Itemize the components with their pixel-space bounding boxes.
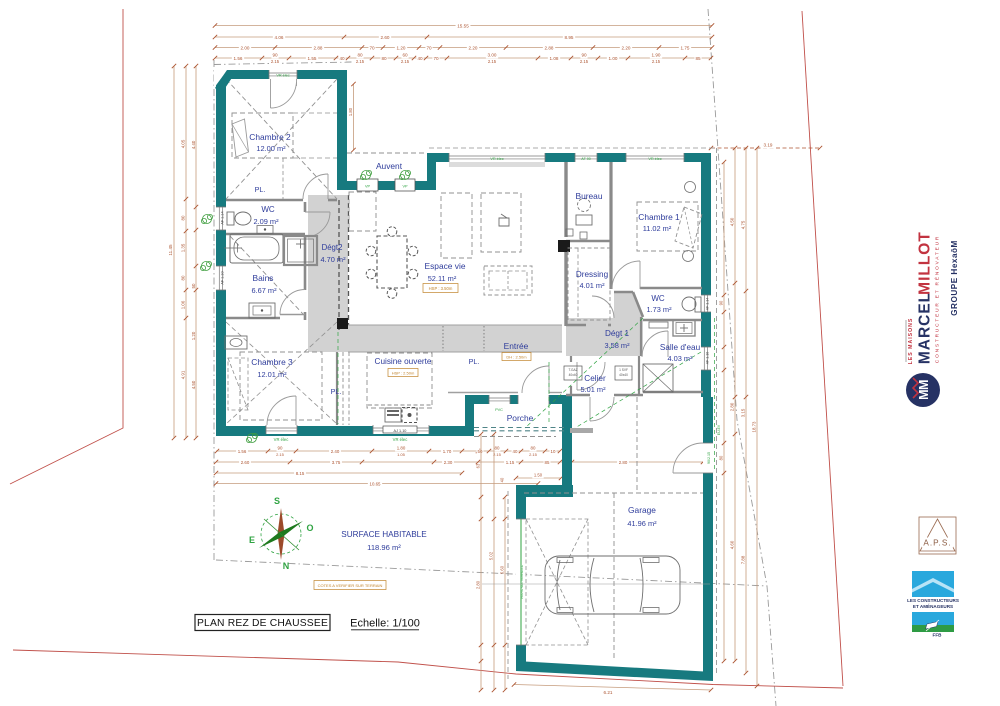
svg-text:4.01 m²: 4.01 m² (579, 281, 605, 290)
svg-text:70: 70 (426, 46, 432, 51)
svg-text:40x40: 40x40 (619, 373, 628, 377)
svg-text:LES CONSTRUCTEURS: LES CONSTRUCTEURS (907, 598, 959, 603)
svg-text:S: S (274, 496, 280, 506)
svg-text:40: 40 (339, 56, 345, 61)
svg-text:LES MAISONS: LES MAISONS (908, 318, 914, 365)
svg-text:1.05: 1.05 (397, 452, 406, 457)
svg-text:WC: WC (261, 205, 275, 214)
svg-text:AF 1.10: AF 1.10 (706, 352, 710, 365)
svg-text:52.11 m²: 52.11 m² (428, 274, 457, 283)
svg-text:1 SVF: 1 SVF (619, 368, 628, 372)
svg-text:COTES A VERIFIER SUR TERRAIN: COTES A VERIFIER SUR TERRAIN (318, 583, 383, 588)
svg-text:80: 80 (381, 56, 387, 61)
svg-text:63: 63 (476, 463, 481, 468)
svg-text:T.GAZ: T.GAZ (568, 368, 577, 372)
svg-text:3.19: 3.19 (764, 143, 773, 148)
svg-text:1.70: 1.70 (443, 449, 452, 454)
svg-text:Dégt 1: Dégt 1 (605, 329, 630, 338)
svg-text:2.80: 2.80 (730, 402, 735, 411)
svg-text:4.91: 4.91 (181, 370, 186, 379)
svg-text:50: 50 (191, 283, 196, 288)
svg-text:O: O (306, 523, 313, 533)
svg-text:WC: WC (651, 294, 665, 303)
svg-text:VR élec: VR élec (648, 157, 661, 161)
svg-text:2.60: 2.60 (241, 460, 250, 465)
svg-text:90: 90 (581, 53, 587, 58)
svg-text:4.75: 4.75 (741, 220, 746, 229)
svg-text:AF 90: AF 90 (581, 157, 591, 161)
svg-text:90: 90 (719, 300, 724, 305)
svg-text:80: 80 (357, 53, 363, 58)
svg-text:1.15: 1.15 (506, 460, 515, 465)
svg-text:18.73: 18.73 (752, 421, 757, 433)
svg-text:CONSTRUCTEUR ET RÉNOVATEUR: CONSTRUCTEUR ET RÉNOVATEUR (934, 235, 941, 363)
svg-text:1.20: 1.20 (191, 331, 196, 340)
svg-text:VR élec: VR élec (276, 74, 289, 78)
svg-text:1.80: 1.80 (397, 446, 406, 451)
svg-text:AF 1.10: AF 1.10 (221, 271, 225, 284)
svg-text:12.00 m²: 12.00 m² (256, 144, 286, 153)
svg-text:AF 1.14: AF 1.14 (221, 211, 225, 224)
svg-text:VR élec: VR élec (393, 437, 408, 442)
svg-text:VR élec: VR élec (490, 157, 503, 161)
svg-text:5.02: 5.02 (489, 551, 494, 560)
svg-text:118.96 m²: 118.96 m² (367, 543, 401, 552)
svg-text:1.20: 1.20 (397, 46, 406, 51)
svg-text:2.15: 2.15 (529, 452, 538, 457)
svg-text:A.P.S.: A.P.S. (923, 539, 951, 548)
svg-text:1.75: 1.75 (681, 46, 690, 51)
svg-text:90: 90 (278, 446, 283, 451)
svg-text:2.15: 2.15 (271, 59, 280, 64)
svg-text:80: 80 (181, 215, 186, 220)
svg-text:Chambre 1: Chambre 1 (638, 212, 680, 222)
svg-text:VR élec: VR élec (274, 437, 289, 442)
svg-text:Cuisine ouverte: Cuisine ouverte (375, 357, 432, 366)
svg-text:VP: VP (402, 185, 408, 189)
svg-text:70: 70 (433, 56, 439, 61)
svg-text:8.15: 8.15 (296, 471, 305, 476)
svg-text:Entrée: Entrée (504, 341, 529, 351)
svg-text:Echelle: 1/100: Echelle: 1/100 (350, 618, 420, 630)
svg-text:4.70 m²: 4.70 m² (320, 255, 346, 264)
svg-text:11.02 m²: 11.02 m² (643, 224, 672, 233)
svg-text:GROUPE HexaôM: GROUPE HexaôM (950, 240, 959, 316)
svg-text:11.45: 11.45 (168, 244, 173, 256)
svg-text:PORTE SECTIONNELLE: PORTE SECTIONNELLE (520, 565, 524, 599)
svg-text:80: 80 (181, 275, 186, 280)
svg-text:PVC: PVC (495, 408, 503, 412)
svg-text:4.60: 4.60 (730, 540, 735, 549)
svg-text:80: 80 (719, 455, 724, 460)
svg-text:6.21: 6.21 (604, 690, 613, 695)
svg-text:2.20: 2.20 (622, 46, 631, 51)
svg-text:10: 10 (551, 449, 556, 454)
svg-text:4.03 m²: 4.03 m² (667, 354, 693, 363)
svg-text:Bains: Bains (253, 273, 274, 283)
svg-text:2.88: 2.88 (314, 46, 323, 51)
svg-text:1.56: 1.56 (234, 56, 243, 61)
svg-text:4.40: 4.40 (191, 140, 196, 149)
svg-text:Dégt2: Dégt2 (322, 243, 343, 252)
svg-text:PLAN REZ DE CHAUSSEE: PLAN REZ DE CHAUSSEE (197, 618, 328, 629)
svg-text:40x40: 40x40 (569, 373, 578, 377)
svg-text:2.15: 2.15 (356, 59, 365, 64)
svg-text:2.15: 2.15 (488, 59, 497, 64)
svg-text:8.95: 8.95 (565, 35, 574, 40)
svg-text:PL.: PL. (331, 387, 342, 396)
svg-text:Chambre 3: Chambre 3 (251, 357, 293, 367)
svg-text:Chambre 2: Chambre 2 (249, 132, 291, 142)
svg-text:3.15: 3.15 (741, 408, 746, 417)
svg-text:Auvent: Auvent (376, 161, 403, 171)
svg-text:SURFACE HABITABLE: SURFACE HABITABLE (341, 530, 427, 539)
svg-text:5.60: 5.60 (500, 565, 505, 574)
svg-text:1.55: 1.55 (308, 56, 317, 61)
svg-text:2.40: 2.40 (331, 449, 340, 454)
svg-text:90/2.15: 90/2.15 (707, 452, 711, 464)
svg-text:Celier: Celier (584, 374, 606, 383)
svg-text:PL.: PL. (255, 185, 266, 194)
svg-text:40: 40 (500, 477, 505, 482)
svg-text:10.65: 10.65 (370, 482, 382, 487)
svg-text:15.55: 15.55 (457, 24, 469, 29)
svg-text:90: 90 (272, 53, 278, 58)
svg-text:PL.: PL. (469, 357, 480, 366)
svg-text:60: 60 (402, 53, 408, 58)
svg-text:40: 40 (513, 449, 518, 454)
svg-text:3.75: 3.75 (332, 460, 341, 465)
svg-text:50: 50 (478, 449, 483, 454)
svg-text:ET AMÉNAGEURS: ET AMÉNAGEURS (913, 602, 953, 609)
svg-text:1.73 m²: 1.73 m² (646, 305, 672, 314)
svg-text:4.50: 4.50 (730, 217, 735, 226)
svg-text:FFB: FFB (933, 633, 943, 638)
svg-text:2.15: 2.15 (401, 59, 410, 64)
svg-text:85: 85 (545, 460, 550, 465)
svg-text:1.80: 1.80 (348, 107, 353, 116)
svg-text:1.35: 1.35 (181, 243, 186, 252)
svg-text:2.15: 2.15 (580, 59, 589, 64)
svg-text:2.09 m²: 2.09 m² (253, 217, 279, 226)
svg-text:Porche: Porche (507, 413, 534, 423)
svg-text:1.08: 1.08 (550, 56, 559, 61)
svg-text:1.56: 1.56 (238, 449, 247, 454)
svg-text:2.15: 2.15 (276, 452, 285, 457)
svg-text:40: 40 (417, 56, 423, 61)
svg-text:7.88: 7.88 (741, 555, 746, 564)
svg-text:80: 80 (531, 446, 536, 451)
svg-text:Garage: Garage (628, 505, 656, 515)
svg-text:12.01 m²: 12.01 m² (257, 370, 287, 379)
svg-text:85: 85 (695, 56, 701, 61)
svg-text:EU-EV: EU-EV (717, 424, 721, 435)
svg-text:2.60: 2.60 (381, 35, 390, 40)
svg-text:1.06: 1.06 (181, 300, 186, 309)
svg-text:6.67 m²: 6.67 m² (251, 286, 277, 295)
svg-text:3.00: 3.00 (488, 53, 497, 58)
svg-text:2.30: 2.30 (444, 460, 453, 465)
svg-text:N: N (283, 561, 290, 571)
svg-text:HSP : 3.50m: HSP : 3.50m (429, 286, 453, 291)
svg-text:1.90: 1.90 (652, 53, 661, 58)
svg-text:80: 80 (495, 446, 500, 451)
svg-text:1.00: 1.00 (609, 56, 618, 61)
svg-text:DH : 2.50m: DH : 2.50m (506, 354, 527, 359)
svg-text:Dressing: Dressing (576, 270, 609, 279)
svg-text:41.96 m²: 41.96 m² (627, 519, 657, 528)
svg-text:Bureau: Bureau (575, 191, 602, 201)
svg-text:5.01 m²: 5.01 m² (580, 385, 606, 394)
svg-text:4.05: 4.05 (181, 139, 186, 148)
svg-text:4.06: 4.06 (275, 35, 284, 40)
svg-text:2.88: 2.88 (545, 46, 554, 51)
svg-text:MARCEL: MARCEL (917, 292, 934, 364)
svg-text:VP: VP (365, 185, 371, 189)
svg-text:2.00: 2.00 (241, 46, 250, 51)
svg-text:2.80: 2.80 (619, 460, 628, 465)
svg-text:HSP : 2.50m: HSP : 2.50m (392, 370, 415, 375)
svg-text:2.20: 2.20 (469, 46, 478, 51)
svg-text:70: 70 (369, 46, 375, 51)
svg-text:2.80: 2.80 (476, 580, 481, 589)
svg-text:1.50: 1.50 (534, 473, 543, 478)
svg-text:Espace vie: Espace vie (425, 261, 466, 271)
svg-text:Salle d'eau: Salle d'eau (660, 343, 701, 352)
svg-text:AJ 1.10: AJ 1.10 (394, 429, 407, 433)
svg-text:MILLOT: MILLOT (917, 231, 934, 295)
svg-text:3.58 m²: 3.58 m² (604, 341, 630, 350)
svg-text:AF 1.14: AF 1.14 (706, 298, 710, 311)
svg-text:4.50: 4.50 (191, 380, 196, 389)
svg-text:2.15: 2.15 (652, 59, 661, 64)
svg-text:E: E (249, 535, 255, 545)
